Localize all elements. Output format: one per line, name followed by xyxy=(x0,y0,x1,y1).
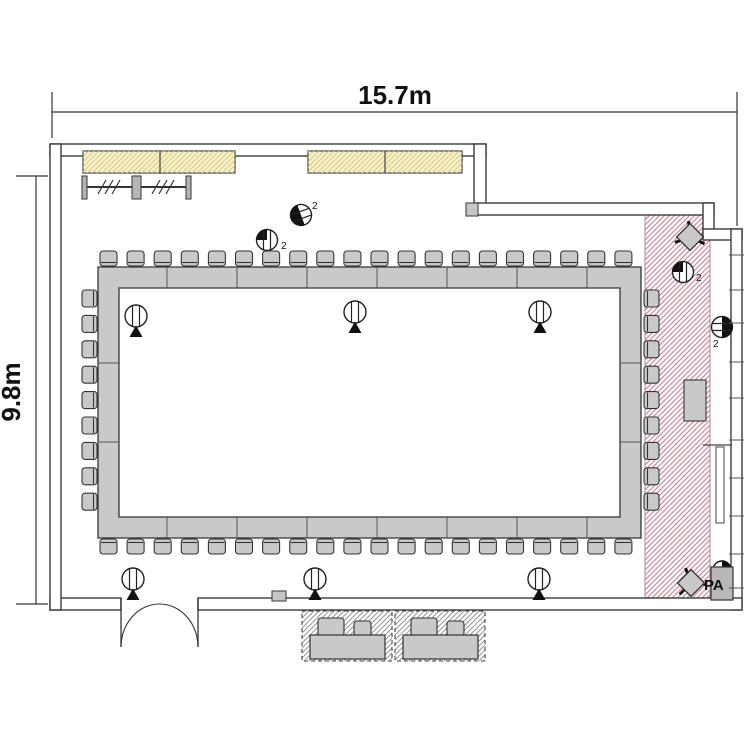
chair-seat xyxy=(425,539,442,554)
chair-seat xyxy=(317,251,334,266)
chair xyxy=(82,315,97,332)
bench-chair xyxy=(354,621,371,636)
chair xyxy=(425,539,442,554)
chair xyxy=(82,468,97,485)
coat-rack-post xyxy=(82,176,87,199)
chair-seat xyxy=(100,251,117,266)
chair xyxy=(644,315,659,332)
chair xyxy=(534,251,551,266)
chair-seat xyxy=(154,251,171,266)
chair xyxy=(615,539,632,554)
chair xyxy=(154,251,171,266)
coat-rack xyxy=(82,176,191,199)
chair xyxy=(181,539,198,554)
chair-seat xyxy=(82,392,97,409)
chair xyxy=(82,366,97,383)
wall-outlet-box xyxy=(466,203,478,216)
chair xyxy=(82,417,97,434)
chair-seat xyxy=(344,251,361,266)
chair-seat xyxy=(82,468,97,485)
chair xyxy=(588,539,605,554)
outlet-count-label: 2 xyxy=(713,339,719,350)
chair-seat xyxy=(398,251,415,266)
outlet-icon xyxy=(712,317,733,338)
chair-seat xyxy=(82,315,97,332)
width-dimension-label: 15.7m xyxy=(358,80,432,110)
chair xyxy=(588,251,605,266)
window-counter xyxy=(308,151,462,173)
floor-plan-page: 2222PA15.7m9.8m xyxy=(0,0,750,750)
chair-seat xyxy=(507,539,524,554)
chair xyxy=(82,290,97,307)
chair xyxy=(644,468,659,485)
chair-seat xyxy=(181,539,198,554)
chair-seat xyxy=(425,251,442,266)
chair-seat xyxy=(236,539,253,554)
chair-seat xyxy=(644,442,659,459)
wall-segment xyxy=(50,144,61,610)
chair xyxy=(644,366,659,383)
chair xyxy=(236,251,253,266)
chair-seat xyxy=(398,539,415,554)
pa-label: PA xyxy=(704,577,724,594)
bench-unit xyxy=(302,611,392,661)
outlet-icon xyxy=(288,202,315,229)
outlet-count-label: 2 xyxy=(312,201,318,212)
chair-seat xyxy=(561,251,578,266)
chair-seat xyxy=(644,315,659,332)
equipment-cart xyxy=(684,380,706,421)
chair xyxy=(344,539,361,554)
chair-seat xyxy=(82,341,97,358)
chair xyxy=(644,493,659,510)
chair-seat xyxy=(644,392,659,409)
chair xyxy=(263,251,280,266)
chair xyxy=(208,539,225,554)
chair-seat xyxy=(644,493,659,510)
speaker-triangle xyxy=(534,322,547,334)
chair xyxy=(534,539,551,554)
chair xyxy=(127,539,144,554)
chair xyxy=(208,251,225,266)
bench-chair xyxy=(411,618,437,636)
chair xyxy=(615,251,632,266)
chair xyxy=(100,251,117,266)
chair-seat xyxy=(534,251,551,266)
chair xyxy=(181,251,198,266)
speaker-circle xyxy=(529,301,551,323)
chair xyxy=(561,539,578,554)
chair-seat xyxy=(317,539,334,554)
speaker-icon xyxy=(122,568,144,600)
speaker-triangle xyxy=(127,589,140,601)
dimension-left: 9.8m xyxy=(0,176,48,604)
speaker-icon xyxy=(304,568,326,600)
speaker-circle xyxy=(122,568,144,590)
speaker-icon xyxy=(528,568,550,600)
chairs xyxy=(82,251,659,554)
speaker-icon xyxy=(529,301,551,333)
speaker-circle xyxy=(528,568,550,590)
chair-seat xyxy=(181,251,198,266)
chair-seat xyxy=(507,251,524,266)
chair-seat xyxy=(263,251,280,266)
height-dimension-label: 9.8m xyxy=(0,362,26,421)
chair-seat xyxy=(290,251,307,266)
chair-seat xyxy=(82,493,97,510)
coat-rack-post xyxy=(132,176,141,199)
chair-seat xyxy=(82,366,97,383)
chair xyxy=(452,539,469,554)
chair-seat xyxy=(479,251,496,266)
chair xyxy=(82,442,97,459)
chair xyxy=(290,539,307,554)
chair xyxy=(82,392,97,409)
chair xyxy=(644,341,659,358)
chair-seat xyxy=(371,251,388,266)
chair-seat xyxy=(644,366,659,383)
chair-seat xyxy=(290,539,307,554)
conference-room-floor-plan: 2222PA15.7m9.8m xyxy=(0,0,750,750)
chair-seat xyxy=(371,539,388,554)
chair-seat xyxy=(100,539,117,554)
bench-unit xyxy=(395,611,485,661)
speaker-triangle xyxy=(533,589,546,601)
chair xyxy=(452,251,469,266)
outlet-count-label: 2 xyxy=(281,241,287,252)
chair xyxy=(290,251,307,266)
chair xyxy=(644,290,659,307)
bench-seat xyxy=(403,635,478,659)
chair-seat xyxy=(344,539,361,554)
chair xyxy=(479,251,496,266)
chair xyxy=(371,539,388,554)
speaker-icon xyxy=(344,301,366,333)
chair-seat xyxy=(644,468,659,485)
chair xyxy=(507,251,524,266)
chair-seat xyxy=(534,539,551,554)
chair-seat xyxy=(644,341,659,358)
chair-seat xyxy=(208,539,225,554)
chair-seat xyxy=(236,251,253,266)
chair-seat xyxy=(615,251,632,266)
speaker-triangle xyxy=(309,589,322,601)
wall-outlet-box xyxy=(272,591,286,601)
chair-seat xyxy=(82,442,97,459)
outlet-icon xyxy=(673,262,694,283)
chair xyxy=(398,539,415,554)
chair-seat xyxy=(479,539,496,554)
conference-table xyxy=(98,267,641,538)
chair-seat xyxy=(615,539,632,554)
chair xyxy=(82,493,97,510)
wall-segment xyxy=(731,229,742,610)
chair-seat xyxy=(208,251,225,266)
chair xyxy=(127,251,144,266)
bench-seat xyxy=(310,635,385,659)
chair-seat xyxy=(127,539,144,554)
chair xyxy=(317,251,334,266)
chair-seat xyxy=(452,539,469,554)
chair xyxy=(371,251,388,266)
chair xyxy=(100,539,117,554)
coat-rack-post xyxy=(186,176,191,199)
chair xyxy=(561,251,578,266)
wall-segment xyxy=(474,203,714,215)
speaker-circle xyxy=(344,301,366,323)
chair-seat xyxy=(644,290,659,307)
chair xyxy=(398,251,415,266)
speaker-circle xyxy=(304,568,326,590)
outlet-count-label: 2 xyxy=(696,273,702,284)
chair-seat xyxy=(452,251,469,266)
chair xyxy=(344,251,361,266)
chair xyxy=(317,539,334,554)
chair-seat xyxy=(82,417,97,434)
chair-seat xyxy=(644,417,659,434)
chair xyxy=(236,539,253,554)
speaker-triangle xyxy=(349,322,362,334)
chair xyxy=(644,442,659,459)
chair xyxy=(507,539,524,554)
window-counter xyxy=(83,151,235,173)
chair xyxy=(479,539,496,554)
entrance-door xyxy=(121,598,198,647)
speaker-triangle xyxy=(130,326,143,338)
chair-seat xyxy=(127,251,144,266)
door-swing-arc xyxy=(121,604,160,647)
chair xyxy=(154,539,171,554)
outlet-icon xyxy=(257,230,278,251)
outlet-fill xyxy=(257,230,268,241)
chair-seat xyxy=(154,539,171,554)
chair-seat xyxy=(263,539,280,554)
chair xyxy=(263,539,280,554)
speaker-circle xyxy=(125,305,147,327)
door-swing-arc xyxy=(160,604,199,647)
chair xyxy=(644,417,659,434)
chair-seat xyxy=(561,539,578,554)
speaker-icon xyxy=(125,305,147,337)
bench-chair xyxy=(318,618,344,636)
window-hatch xyxy=(83,151,235,173)
chair xyxy=(82,341,97,358)
table-surface xyxy=(98,267,641,538)
chair-seat xyxy=(588,539,605,554)
chair xyxy=(644,392,659,409)
chair xyxy=(425,251,442,266)
chair-seat xyxy=(82,290,97,307)
bench-chair xyxy=(447,621,464,636)
chair-seat xyxy=(588,251,605,266)
right-fixture xyxy=(716,447,724,523)
